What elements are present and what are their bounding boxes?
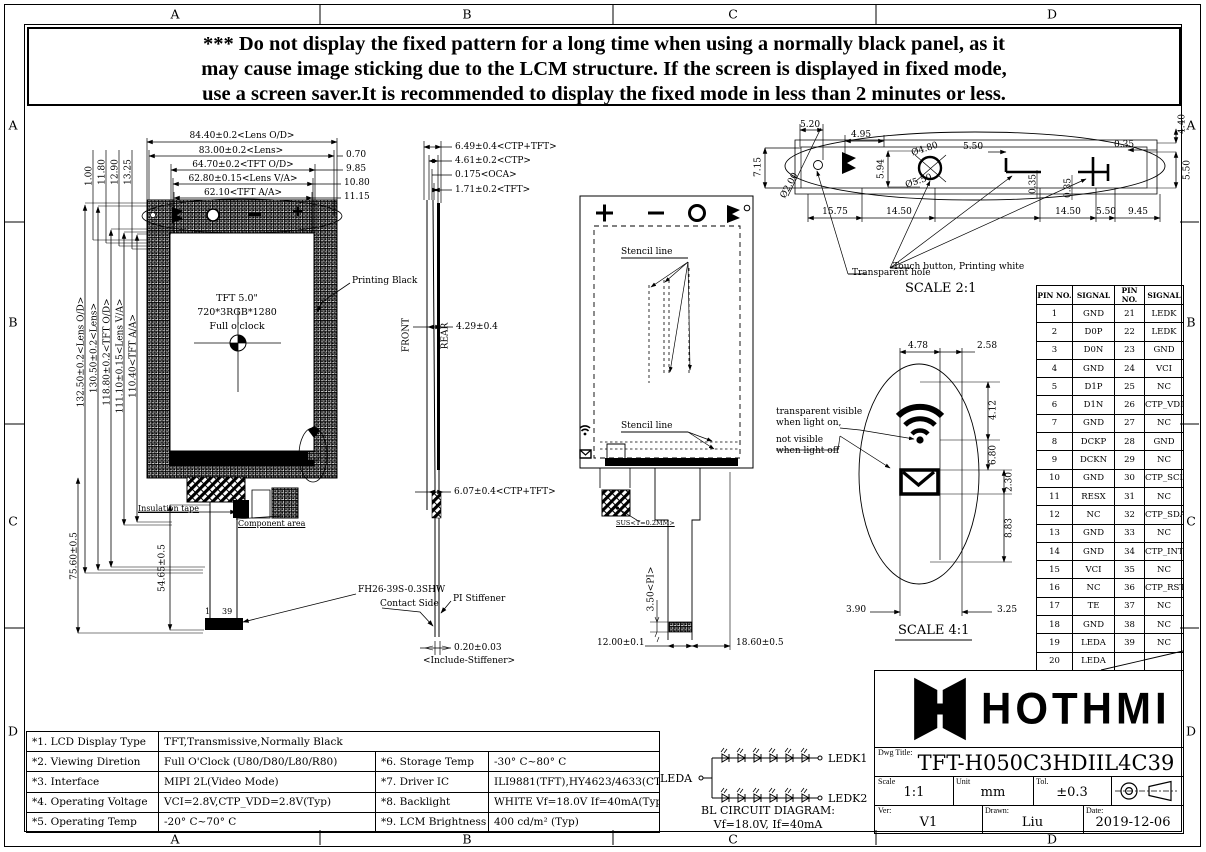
- drawn-cell: Drawn: Liu: [982, 805, 1084, 833]
- transparent-hole-label: Transparent hole: [852, 269, 931, 278]
- pin-signal: GND: [1145, 341, 1184, 359]
- dim-label: 11.15: [344, 193, 370, 202]
- spec-row: *1. LCD Display Type TFT,Transmissive,No…: [27, 732, 660, 752]
- pin-table-row: 15 VCI 35 NC: [1037, 561, 1184, 579]
- insulation-tape-label: Insulation tape: [138, 505, 199, 513]
- pin-signal: DCKN: [1073, 451, 1115, 469]
- pin-number: 9: [1037, 451, 1073, 469]
- dim-label: 12.00±0.1: [597, 639, 645, 648]
- pin-signal: RESX: [1073, 487, 1115, 505]
- pin-signal: GND: [1073, 469, 1115, 487]
- dim-label: 0.35: [1114, 141, 1134, 150]
- spec-label: *8. Backlight: [376, 792, 489, 812]
- dim-label: 6.07±0.4<CTP+TFT>: [454, 488, 556, 497]
- spec-value: WHITE Vf=18.0V If=40mA(Typ): [489, 792, 660, 812]
- pin-signal: LEDA: [1073, 652, 1115, 670]
- pin-number: 23: [1115, 341, 1145, 359]
- pin-number: 36: [1115, 579, 1145, 597]
- drawn-value: Liu: [982, 815, 1083, 830]
- spec-row: *4. Operating Voltage VCI=2.8V,CTP_VDD=2…: [27, 792, 660, 812]
- connector-label: FH26-39S-0.3SHW: [358, 586, 445, 595]
- specifications-table: *1. LCD Display Type TFT,Transmissive,No…: [26, 731, 660, 833]
- bl-circuit-drawing: [699, 748, 822, 802]
- pin-signal: LEDK: [1145, 305, 1184, 323]
- pin-assignment-table: PIN NO. SIGNAL PIN NO. SIGNAL 1 GND 21 L…: [1036, 285, 1184, 671]
- panel-spec-text: TFT 5.0": [216, 294, 258, 304]
- spec-value: -20° C~70° C: [159, 812, 376, 832]
- spec-value: MIPI 2L(Video Mode): [159, 772, 376, 792]
- pin-signal: CTP_SDA: [1145, 506, 1184, 524]
- ledk2-label: LEDK2: [828, 793, 867, 804]
- panel-spec-text: Full o'clock: [209, 322, 264, 332]
- pin-table-row: 5 D1P 25 NC: [1037, 378, 1184, 396]
- front-side-label: FRONT: [403, 318, 412, 352]
- connector-pin-1: 1: [205, 608, 210, 616]
- pin-table-row: 16 NC 36 CTP_RST: [1037, 579, 1184, 597]
- pin-number: 14: [1037, 542, 1073, 560]
- dim-label: 4.29±0.4: [456, 323, 498, 332]
- pin-signal: GND: [1073, 414, 1115, 432]
- dim-label: 2.58: [977, 342, 997, 351]
- pin-table-header: PIN NO.: [1037, 286, 1073, 305]
- pin-number: 4: [1037, 359, 1073, 377]
- panel-spec-text: 720*3RGB*1280: [197, 308, 277, 318]
- pin-number: 27: [1115, 414, 1145, 432]
- pin-signal: CTP_RST: [1145, 579, 1184, 597]
- ver-cell: Ver: V1: [875, 805, 983, 833]
- unit-cell: Unit mm: [953, 776, 1034, 805]
- pin-signal: NC: [1145, 597, 1184, 615]
- dim-label: 0.70: [346, 151, 366, 160]
- pin-signal: NC: [1145, 561, 1184, 579]
- dim-label: 75.60±0.5: [71, 532, 80, 580]
- transparent-note-line: not visible: [776, 436, 823, 445]
- pin-signal: LEDK: [1145, 323, 1184, 341]
- dim-label: 5.94: [878, 159, 887, 179]
- tol-cell: Tol. ±0.3: [1033, 776, 1112, 805]
- pin-signal: VCI: [1145, 359, 1184, 377]
- dwg-title-label: Dwg Title:: [878, 748, 912, 757]
- pin-number: 32: [1115, 506, 1145, 524]
- dim-label: 3.50<PI>: [648, 567, 657, 612]
- ledk1-label: LEDK1: [828, 753, 867, 764]
- pin-number: 28: [1115, 433, 1145, 451]
- dim-label: 0.35: [1030, 174, 1039, 194]
- ver-label: Ver:: [878, 806, 891, 815]
- pin-number: 37: [1115, 597, 1145, 615]
- dim-label: 0.20±0.03: [454, 644, 502, 653]
- pin-table-row: 17 TE 37 NC: [1037, 597, 1184, 615]
- spec-value: TFT,Transmissive,Normally Black: [159, 732, 660, 752]
- pin-table-row: 13 GND 33 NC: [1037, 524, 1184, 542]
- dim-label: 1.71±0.2<TFT>: [455, 186, 530, 195]
- dim-label: 111.10±0.15<Lens V/A>: [117, 299, 126, 414]
- component-area-label: Component area: [238, 520, 305, 528]
- dwg-title-value: TFT-H050C3HDIIL4C39: [909, 751, 1183, 775]
- pin-number: 31: [1115, 487, 1145, 505]
- pin-table-row: 2 D0P 22 LEDK: [1037, 323, 1184, 341]
- pin-table-row: 14 GND 34 CTP_INT: [1037, 542, 1184, 560]
- dim-label: 132.50±0.2<Lens O/D>: [78, 297, 87, 408]
- version-row: Ver: V1 Drawn: Liu Date: 2019-12-06: [875, 805, 1183, 833]
- title-block: HOTHMI Dwg Title: TFT-H050C3HDIIL4C39 Sc…: [874, 670, 1184, 834]
- dim-label: 9.85: [346, 165, 366, 174]
- ver-value: V1: [875, 815, 982, 830]
- pin-table-row: 9 DCKN 29 NC: [1037, 451, 1184, 469]
- pin-signal: NC: [1145, 378, 1184, 396]
- pin-signal: GND: [1145, 433, 1184, 451]
- scale-2-1-label: SCALE 2:1: [905, 282, 976, 295]
- scale-4-1-label: SCALE 4:1: [898, 624, 969, 637]
- pin-signal: GND: [1073, 524, 1115, 542]
- pin-signal: GND: [1073, 542, 1115, 560]
- dim-label: 5.50: [963, 143, 983, 152]
- leda-label: LEDA: [660, 773, 692, 784]
- dim-label: 64.70±0.2<TFT O/D>: [192, 161, 293, 170]
- pin-signal: LEDA: [1073, 634, 1115, 652]
- pin-number: 16: [1037, 579, 1073, 597]
- pin-table-row: 11 RESX 31 NC: [1037, 487, 1184, 505]
- pin-signal: TE: [1073, 597, 1115, 615]
- dim-label: 14.50: [886, 208, 912, 217]
- pin-number: [1115, 652, 1145, 670]
- bl-circuit-subtitle: Vf=18.0V, If=40mA: [714, 819, 823, 830]
- dim-label: 13.25: [125, 159, 134, 185]
- pin-number: 15: [1037, 561, 1073, 579]
- dim-label: 3.25: [997, 606, 1017, 615]
- dim-label: 12.90: [112, 159, 121, 185]
- unit-value: mm: [953, 785, 1033, 800]
- logo-row: HOTHMI: [875, 671, 1183, 748]
- dim-label: 54.65±0.5: [159, 544, 168, 592]
- dwg-title-row: Dwg Title: TFT-H050C3HDIIL4C39: [875, 747, 1183, 777]
- pin-table-row: 1 GND 21 LEDK: [1037, 305, 1184, 323]
- scale-value: 1:1: [875, 785, 953, 800]
- transparent-note-line: when light off: [776, 447, 839, 456]
- pin-number: 18: [1037, 616, 1073, 634]
- pin-signal: VCI: [1073, 561, 1115, 579]
- pin-table-row: 3 D0N 23 GND: [1037, 341, 1184, 359]
- stencil-line-label: Stencil line: [621, 422, 672, 431]
- pin-number: 24: [1115, 359, 1145, 377]
- dim-label: 62.80±0.15<Lens V/A>: [188, 175, 297, 184]
- pin-number: 33: [1115, 524, 1145, 542]
- dim-label: 8.83: [1006, 518, 1015, 538]
- pin-number: 13: [1037, 524, 1073, 542]
- spec-value: 400 cd/m² (Typ): [489, 812, 660, 832]
- rear-side-label: REAR: [442, 323, 451, 350]
- pin-signal: GND: [1073, 305, 1115, 323]
- include-stiffener-note: <Include-Stiffener>: [423, 657, 515, 666]
- pin-signal: D1N: [1073, 396, 1115, 414]
- pin-signal: NC: [1145, 616, 1184, 634]
- pin-number: 19: [1037, 634, 1073, 652]
- dim-label: 0.175<OCA>: [455, 171, 517, 180]
- pin-number: 17: [1037, 597, 1073, 615]
- pin-table-row: 8 DCKP 28 GND: [1037, 433, 1184, 451]
- pin-signal: NC: [1145, 487, 1184, 505]
- dim-label: 15.75: [822, 208, 848, 217]
- pin-number: 21: [1115, 305, 1145, 323]
- dim-label: 4.61±0.2<CTP>: [455, 157, 531, 166]
- dim-label: 84.40±0.2<Lens O/D>: [190, 132, 295, 141]
- drawing-sheet: A B C D A B C D A B C D A B C D *** Do n…: [0, 0, 1206, 852]
- spec-value: Full O'Clock (U80/D80/L80/R80): [159, 752, 376, 772]
- dim-label: 130.50±0.2<Lens>: [91, 303, 100, 393]
- dim-label: 118.80±0.2<TFT O/D>: [104, 298, 113, 405]
- pin-signal: [1145, 652, 1184, 670]
- pin-number: 34: [1115, 542, 1145, 560]
- pin-signal: D0P: [1073, 323, 1115, 341]
- pin-table-header: PIN NO.: [1115, 286, 1145, 305]
- pin-signal: NC: [1073, 506, 1115, 524]
- spec-label: *9. LCM Brightness: [376, 812, 489, 832]
- pin-signal: CTP_SCL: [1145, 469, 1184, 487]
- dim-label: 4.95: [851, 131, 871, 140]
- hothmi-logo-icon: [903, 675, 977, 743]
- spec-label: *6. Storage Temp: [376, 752, 489, 772]
- spec-value: -30° C~80° C: [489, 752, 660, 772]
- pin-table-row: 20 LEDA: [1037, 652, 1184, 670]
- spec-row: *3. Interface MIPI 2L(Video Mode) *7. Dr…: [27, 772, 660, 792]
- dim-label: 0.35: [1065, 178, 1074, 198]
- stencil-line-label: Stencil line: [621, 248, 672, 257]
- transparent-note-line: when light on,: [776, 419, 841, 428]
- dim-label: 5.50: [1184, 160, 1193, 180]
- dim-label: 1.00: [86, 166, 95, 186]
- pin-signal: DCKP: [1073, 433, 1115, 451]
- spec-label: *3. Interface: [27, 772, 159, 792]
- pin-table-row: 4 GND 24 VCI: [1037, 359, 1184, 377]
- contact-side-label: Contact Side: [380, 600, 439, 609]
- pin-signal: NC: [1145, 524, 1184, 542]
- pin-table-header: SIGNAL: [1073, 286, 1115, 305]
- pin-number: 6: [1037, 396, 1073, 414]
- pin-signal: CTP_INT: [1145, 542, 1184, 560]
- pin-signal: D1P: [1073, 378, 1115, 396]
- dim-label: 14.50: [1055, 208, 1081, 217]
- dim-label: 4.78: [908, 342, 928, 351]
- tol-value: ±0.3: [1033, 785, 1111, 800]
- pi-stiffener-label: PI Stiffener: [453, 595, 505, 604]
- pin-signal: GND: [1073, 359, 1115, 377]
- spec-label: *2. Viewing Diretion: [27, 752, 159, 772]
- spec-row: *5. Operating Temp -20° C~70° C *9. LCM …: [27, 812, 660, 832]
- drawn-label: Drawn:: [985, 806, 1009, 815]
- pin-number: 20: [1037, 652, 1073, 670]
- dim-label: 10.80: [344, 179, 370, 188]
- pin-table-row: 10 GND 30 CTP_SCL: [1037, 469, 1184, 487]
- dim-label: 7.15: [755, 157, 764, 177]
- pin-number: 26: [1115, 396, 1145, 414]
- pin-number: 30: [1115, 469, 1145, 487]
- dim-label: 110.40<TFT A/A>: [130, 314, 139, 398]
- spec-value: VCI=2.8V,CTP_VDD=2.8V(Typ): [159, 792, 376, 812]
- spec-label: *7. Driver IC: [376, 772, 489, 792]
- spec-value: ILI9881(TFT),HY4623/4633(CTP): [489, 772, 660, 792]
- pin-number: 8: [1037, 433, 1073, 451]
- spec-label: *1. LCD Display Type: [27, 732, 159, 752]
- scale-row: Scale 1:1 Unit mm Tol. ±0.3: [875, 776, 1183, 806]
- pin-number: 29: [1115, 451, 1145, 469]
- pin-table-row: 12 NC 32 CTP_SDA: [1037, 506, 1184, 524]
- pin-number: 10: [1037, 469, 1073, 487]
- pin-table-row: 18 GND 38 NC: [1037, 616, 1184, 634]
- pin-number: 22: [1115, 323, 1145, 341]
- pin-number: 35: [1115, 561, 1145, 579]
- dim-label: 6.49±0.4<CTP+TFT>: [455, 143, 557, 152]
- pin-table-header: SIGNAL: [1145, 286, 1184, 305]
- dim-label: 5.20: [800, 121, 820, 130]
- date-value: 2019-12-06: [1083, 815, 1183, 830]
- dim-label: 4.12: [990, 400, 999, 420]
- pin-signal: NC: [1145, 634, 1184, 652]
- dim-label: 2.30: [1006, 472, 1015, 492]
- brand-name: HOTHMI: [981, 684, 1171, 734]
- dim-label: 11.80: [99, 159, 108, 185]
- pin-number: 38: [1115, 616, 1145, 634]
- pin-number: 39: [1115, 634, 1145, 652]
- spec-label: *4. Operating Voltage: [27, 792, 159, 812]
- pin-signal: CTP_VDD: [1145, 396, 1184, 414]
- pin-number: 7: [1037, 414, 1073, 432]
- pin-number: 2: [1037, 323, 1073, 341]
- sus-label: SUS<T=0.2MM>: [616, 520, 675, 527]
- pin-number: 5: [1037, 378, 1073, 396]
- connector-pin-39: 39: [222, 608, 232, 616]
- pin-number: 25: [1115, 378, 1145, 396]
- spec-row: *2. Viewing Diretion Full O'Clock (U80/D…: [27, 752, 660, 772]
- side-view-drawing: [382, 141, 453, 655]
- pin-number: 12: [1037, 506, 1073, 524]
- dim-label: 9.45: [1128, 208, 1148, 217]
- pin-number: 11: [1037, 487, 1073, 505]
- pin-table-header-row: PIN NO. SIGNAL PIN NO. SIGNAL: [1037, 286, 1184, 305]
- dim-label: 3.90: [846, 606, 866, 615]
- pin-signal: NC: [1145, 451, 1184, 469]
- pin-number: 1: [1037, 305, 1073, 323]
- dim-label: 62.10<TFT A/A>: [204, 189, 282, 198]
- date-label: Date:: [1086, 806, 1103, 815]
- bl-circuit-title: BL CIRCUIT DIAGRAM:: [701, 805, 835, 816]
- scale-cell: Scale 1:1: [875, 776, 954, 805]
- dim-label: 5.50: [1096, 208, 1116, 217]
- detail-4-1-drawing: [776, 348, 1012, 640]
- dim-label: 18.60±0.5: [736, 639, 784, 648]
- dim-label: 83.00±0.2<Lens>: [199, 147, 283, 156]
- pin-signal: D0N: [1073, 341, 1115, 359]
- dim-label: 6.80: [990, 445, 999, 465]
- dim-label: 4.40: [1179, 114, 1188, 134]
- transparent-note-line: transparent visible: [776, 408, 862, 417]
- date-cell: Date: 2019-12-06: [1083, 805, 1183, 833]
- pin-signal: NC: [1145, 414, 1184, 432]
- pin-signal: GND: [1073, 616, 1115, 634]
- pin-number: 3: [1037, 341, 1073, 359]
- pin-table-row: 19 LEDA 39 NC: [1037, 634, 1184, 652]
- pin-table-row: 6 D1N 26 CTP_VDD: [1037, 396, 1184, 414]
- pin-signal: NC: [1073, 579, 1115, 597]
- pin-table-row: 7 GND 27 NC: [1037, 414, 1184, 432]
- spec-label: *5. Operating Temp: [27, 812, 159, 832]
- printing-black-label: Printing Black: [352, 277, 417, 286]
